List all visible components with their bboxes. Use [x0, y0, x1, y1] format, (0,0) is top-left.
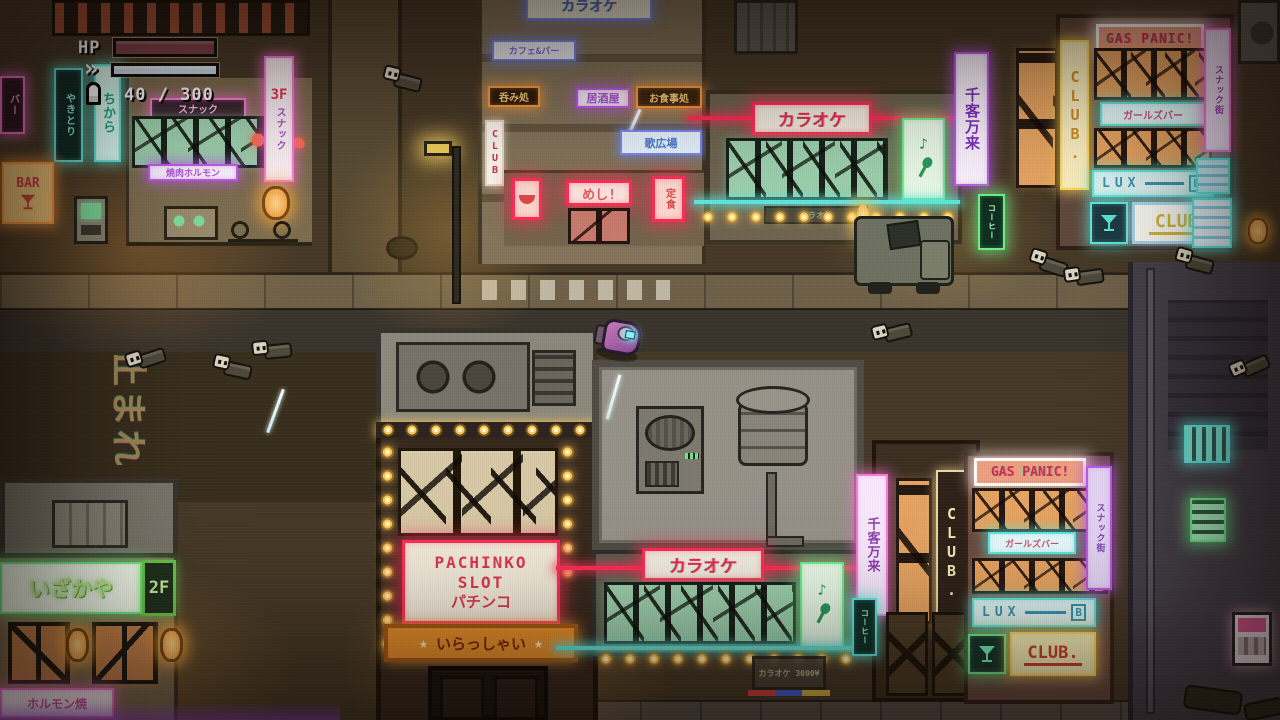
utahiroba-text: 歌広場 [645, 135, 678, 151]
meshi-lit-sign: めし! [566, 180, 632, 206]
club-vertical-sign-top-right: CLUB. [1060, 40, 1089, 190]
ammo-bullet-icon [86, 82, 101, 105]
truck-hood [920, 240, 950, 280]
ac-led-dots [685, 453, 699, 459]
club-vertical-bottom-text: CLUB. [944, 505, 959, 600]
truck-wheel-right [916, 282, 940, 294]
price-board-text: カラオケ 3000¥ [759, 668, 820, 679]
paper-lantern [262, 186, 290, 220]
lux-bottom-text: LUX [982, 605, 1020, 620]
snack-vertical-sign-bottom-right: スナック街 [1086, 466, 1112, 590]
cocktail-icon [1098, 213, 1120, 233]
cyan-mini-plate-1 [1196, 158, 1230, 194]
ac-vents [645, 461, 679, 487]
gaspanic-top-windows-2 [1094, 128, 1212, 168]
pachinko-line1-text: PACHINKO [434, 553, 527, 573]
price-board: カラオケ 3000¥ [752, 656, 826, 690]
kanji-vertical-bottom-text: 千客万来 [866, 517, 879, 573]
skeleton-enemy [1062, 257, 1110, 297]
health-bar [113, 38, 217, 57]
izakaya-lantern-mid [66, 628, 89, 662]
skeleton-skull [1063, 266, 1082, 283]
pachinko-line3-text: パチンコ [451, 593, 511, 612]
vending-slot [81, 225, 101, 235]
orange-window-column-bottom [896, 478, 932, 624]
star-icon-right: ★ [534, 634, 543, 652]
lux-bottom-b-text: B [1071, 604, 1086, 621]
ammo-count: 40 / 300 [124, 85, 214, 105]
nomidokoro-sign: 呑み処 [488, 86, 540, 107]
teishoku-lit-sign: 定食 [652, 176, 685, 222]
cafe-bar-sign: カフェ&バー [492, 40, 576, 61]
horumon-neon-sign: ホルモン焼 [0, 688, 114, 718]
entrance-door-right [494, 676, 538, 720]
rainbow-strip [748, 690, 830, 696]
ac-fan-grille [645, 415, 695, 451]
vending-machine-green [74, 196, 108, 244]
truck-windshield [886, 220, 921, 250]
skeleton-skull [251, 340, 269, 357]
restaurant-windows [568, 208, 630, 244]
player-character [590, 312, 648, 370]
street-lamp-head [424, 141, 452, 156]
bicycle-silhouette [228, 216, 298, 242]
roof-pipe-elbow [766, 536, 804, 547]
club-plate-bottom-underline [1024, 663, 1081, 666]
karaoke-main-sign-bottom-text: カラオケ [669, 552, 737, 577]
microphone-icon [808, 599, 835, 631]
nomidokoro-text: 呑み処 [499, 89, 529, 104]
club-vertical-left-sign: CLUB [485, 120, 504, 186]
karaoke-bottom-windows [604, 582, 796, 644]
stamina-chevron-icon: » [84, 54, 98, 82]
karaoke-bottom-neon-left [556, 566, 650, 570]
karaoke-top-windows [726, 138, 888, 200]
bar-sign: BAR [2, 162, 54, 224]
yakiniku-neon-text: 焼肉ホルモン [166, 166, 220, 179]
karaoke-main-sign-top: カラオケ [752, 102, 872, 135]
vending-pink-stripe [1238, 618, 1266, 632]
player-visor [625, 330, 636, 340]
coffee-sign-top: コーヒー [978, 194, 1005, 250]
rooftop-unit [734, 0, 798, 54]
pachinko-entrance [428, 666, 548, 720]
snack-vertical-sign-top-right: スナック街 [1204, 28, 1231, 152]
truck-wheel-left [868, 282, 892, 294]
right-building-pipe [1146, 268, 1155, 714]
meshi-text: めし! [582, 184, 616, 203]
coffee-sign-top-text: コーヒー [988, 204, 996, 240]
club-plate-bottom: CLUB. [1010, 632, 1096, 676]
coffee-sign-bottom-text: コーヒー [861, 609, 869, 645]
cocktail-icon-box-bottom [968, 634, 1006, 674]
izakaya-2f-plate: 2F [142, 560, 176, 616]
club-plate-bottom-text: CLUB. [1027, 643, 1078, 663]
orange-window-column-top [1016, 48, 1058, 188]
welcome-banner-text: いらっしゃい [436, 633, 526, 654]
ramen-lit-sign [512, 178, 542, 220]
alley-door-left [886, 612, 928, 696]
topleft-green-windows [132, 116, 266, 168]
girls-bar-sign-bottom: ガールズバー [988, 532, 1076, 554]
kanji-vertical-sign-top: 千客万来 [954, 52, 989, 186]
snack-vertical-top-right-text: スナック街 [1213, 65, 1222, 115]
pachinko-cracked-windows [398, 448, 558, 536]
utahiroba-plate: 歌広場 [620, 130, 702, 155]
cyan-neon-line-bottom [556, 646, 868, 650]
cocktail-icon [976, 644, 998, 664]
oshokuji-sign: お食事処 [636, 86, 702, 108]
izakaya-window-left [8, 622, 70, 684]
skeleton-skull [212, 353, 232, 371]
lux-bottom-dash [1025, 611, 1066, 614]
pachinko-roof-pipes [532, 350, 576, 406]
hud: HP » 40 / 300 [0, 0, 340, 120]
cocktail-icon [18, 193, 38, 211]
pachinko-line2-text: SLOT [458, 573, 505, 593]
gaspanic-top-windows-1 [1094, 48, 1212, 100]
club-vertical-left-text: CLUB [490, 129, 500, 177]
music-note-icon: ♪ [817, 581, 826, 599]
water-tank [736, 386, 812, 474]
izakaya-sign: いざかや [0, 562, 142, 614]
karaoke-neon-line-left [688, 116, 758, 120]
girls-bar-sign-top: ガールズバー [1100, 102, 1206, 126]
club-vertical-sign-bottom: CLUB. [936, 470, 966, 634]
right-mini-neon-1 [1184, 425, 1230, 463]
ramen-bowl-icon [519, 195, 535, 204]
lux-top-dash [1145, 182, 1184, 185]
entrance-door-left [440, 676, 484, 720]
girls-bar-top-text: ガールズバー [1123, 107, 1183, 122]
cyan-mini-plate-2 [1192, 198, 1232, 248]
snack-vertical-bottom-right-text: スナック街 [1095, 503, 1104, 553]
microphone-icon [910, 153, 937, 185]
pachinko-roof-machinery [396, 342, 530, 412]
cyan-neon-line-top [694, 200, 960, 204]
crosswalk [482, 280, 670, 300]
yakiniku-neon-sign: 焼肉ホルモン [148, 164, 238, 181]
lux-top-text: LUX [1102, 176, 1140, 191]
right-mini-neon-2 [1190, 498, 1226, 542]
karaoke-roof-text: カラオケ [561, 0, 617, 16]
tank-lid [736, 386, 810, 414]
pachinko-slot-sign: PACHINKO SLOT パチンコ [402, 540, 560, 624]
mic-sign-top: ♪ [902, 118, 945, 200]
izakaya-roof-box [52, 500, 128, 548]
izakaya-purple-sign: 居酒屋 [576, 88, 630, 108]
star-icon-left: ★ [419, 634, 428, 652]
roof-pipe-vertical [766, 472, 777, 546]
welcome-banner: ★ いらっしゃい ★ [384, 624, 578, 662]
izakaya-window-right [92, 622, 158, 684]
gas-panic-sign-bottom: GAS PANIC! [974, 458, 1086, 486]
far-right-roof-unit [1238, 0, 1280, 64]
teishoku-text: 定食 [664, 188, 674, 210]
game-viewport[interactable]: 止まれ スナック 焼肉ホルモン 3F スナック やきとり ちから バー BAR … [0, 0, 1280, 720]
industrial-roof [592, 360, 864, 550]
kanji-vertical-sign-bottom: 千客万来 [856, 474, 888, 616]
club-vertical-top-right-text: CLUB. [1067, 68, 1082, 163]
skeleton-enemy [250, 332, 297, 370]
vending-pink-slots [1238, 637, 1266, 655]
gas-panic-top-text: GAS PANIC! [1106, 32, 1194, 47]
karaoke-roof-sign: カラオケ [526, 0, 652, 20]
karaoke-main-sign-bottom: カラオケ [642, 548, 764, 581]
right-paper-lantern [1248, 218, 1268, 244]
izakaya-2f-text: 2F [149, 578, 169, 598]
music-note-icon: ♪ [919, 135, 928, 153]
vending-screen [81, 203, 101, 219]
cafe-bar-text: カフェ&バー [509, 44, 559, 57]
bar-sign-text: BAR [16, 176, 39, 191]
horumon-text: ホルモン焼 [27, 695, 87, 712]
pachinko-bulb-row-top [376, 422, 598, 438]
izakaya-purple-text: 居酒屋 [587, 90, 620, 106]
vending-machine-pink [1232, 612, 1272, 666]
oshokuji-text: お食事処 [649, 90, 689, 105]
izakaya-lantern-right [160, 628, 183, 662]
cocktail-icon-box-top [1090, 202, 1128, 244]
street-lamp-pole [452, 146, 461, 304]
karaoke-main-sign-top-text: カラオケ [778, 106, 846, 131]
manhole [386, 236, 418, 260]
stamina-bar [111, 63, 219, 77]
kanji-vertical-top-text: 千客万来 [964, 87, 979, 151]
gas-panic-bottom-text: GAS PANIC! [991, 465, 1069, 480]
izakaya-sign-text: いざかや [29, 573, 113, 603]
girls-bar-bottom-text: ガールズバー [1005, 537, 1059, 550]
coffee-sign-bottom: コーヒー [852, 598, 877, 656]
truck [854, 212, 960, 296]
mic-sign-bottom: ♪ [800, 562, 844, 648]
lux-sign-bottom: LUX B [972, 598, 1096, 627]
shop-counter [164, 206, 218, 240]
ac-unit [636, 406, 704, 494]
